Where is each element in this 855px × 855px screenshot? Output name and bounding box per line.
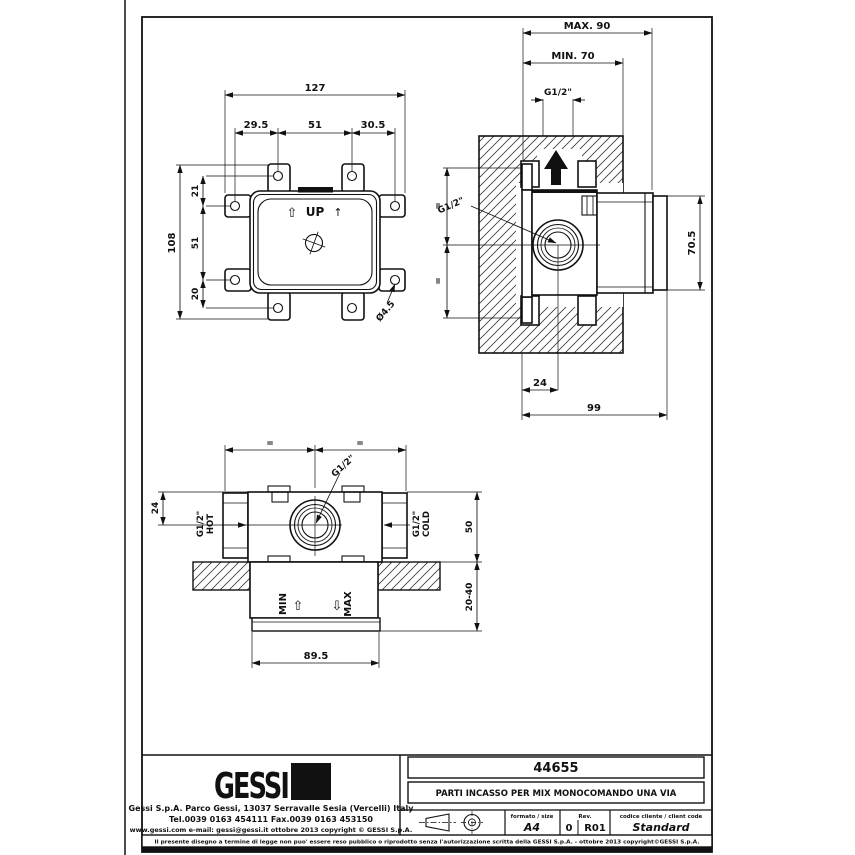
disclaimer-text: Il presente disegno a termine di legge n…: [155, 840, 700, 846]
dim-body-width: 89.5: [304, 651, 329, 662]
dim-v-mid: 51: [191, 237, 201, 250]
dim-overall-height: 108: [167, 233, 178, 254]
protection-box: [250, 562, 378, 618]
bottom-bar: [142, 847, 712, 852]
dim-hole-diameter: Ø4.5: [374, 299, 398, 324]
projection-symbol-icon: [419, 811, 483, 834]
dim-thread-top: G1/2": [544, 88, 572, 98]
cover-edge: [252, 618, 380, 631]
dim-equal-right: =: [356, 439, 364, 449]
max-down-arrow-icon: ⇩: [332, 599, 343, 614]
format-value: A4: [523, 821, 540, 834]
max-label: MAX: [343, 591, 354, 617]
dim-min-depth: MIN. 70: [551, 51, 594, 62]
gessi-logo: GESSI: [214, 763, 331, 807]
dim-thread-center: G1/2": [330, 453, 357, 479]
dim-thread-cold: G1/2": [412, 511, 422, 537]
dim-body-height: 70.5: [687, 231, 698, 256]
dim-v-bottom: 20: [191, 288, 201, 301]
up-label: UP: [306, 205, 325, 219]
dim-thread-hot: G1/2": [196, 511, 206, 537]
company-web: www.gessi.com e-mail: gessi@gessi.it ott…: [130, 826, 413, 834]
company-address: Gessi S.p.A. Parco Gessi, 13037 Serraval…: [129, 804, 415, 813]
client-code-label: codice cliente / client code: [620, 814, 703, 820]
rev-value-1: 0: [566, 823, 573, 834]
dim-center-offset: 24: [533, 378, 547, 389]
end-cap: [653, 196, 667, 290]
part-number: 44655: [533, 761, 578, 776]
front-view: ⇧ UP ↑ 127 29.5 51 30.5 108 21 51 20 Ø4.…: [167, 83, 405, 324]
dim-spacing-right: 30.5: [361, 120, 386, 131]
min-up-arrow-icon: ⇧: [293, 599, 304, 614]
top-view: MIN ⇧ ⇩ MAX = = G1/2" 24 G1/2" HOT G1/2"…: [151, 439, 482, 668]
rev-label: Rev.: [578, 814, 591, 820]
rev-value-2: R01: [584, 823, 606, 834]
dim-center-offset-top: 24: [151, 502, 161, 515]
dim-max-depth: MAX. 90: [564, 21, 611, 32]
technical-drawing: ⇧ UP ↑ 127 29.5 51 30.5 108 21 51 20 Ø4.…: [0, 0, 855, 855]
gessi-logo-text: GESSI: [214, 766, 288, 807]
part-description: PARTI INCASSO PER MIX MONOCOMANDO UNA VI…: [436, 789, 677, 799]
up-arrow-outline-icon: ⇧: [287, 206, 298, 221]
up-arrow-thin-icon: ↑: [333, 206, 342, 219]
company-phone: Tel.0039 0163 454111 Fax.0039 0163 45315…: [169, 815, 373, 824]
title-block: GESSI Gessi S.p.A. Parco Gessi, 13037 Se…: [129, 755, 712, 852]
flange-plate: [522, 190, 532, 297]
wall-strip-right: [378, 562, 440, 590]
dim-wall-range: 20-40: [465, 583, 475, 612]
top-clip: [298, 187, 333, 193]
gessi-logo-square: [291, 763, 331, 800]
dim-body-depth: 50: [465, 521, 475, 534]
dim-spacing-center: 51: [308, 120, 322, 131]
cold-label: COLD: [422, 511, 432, 537]
drawing-frame: [142, 17, 712, 852]
dim-v-top: 21: [191, 185, 201, 198]
min-label: MIN: [278, 593, 289, 615]
drawing-sheet: ⇧ UP ↑ 127 29.5 51 30.5 108 21 51 20 Ø4.…: [0, 0, 855, 855]
wall-strip-left: [193, 562, 250, 590]
dim-overall-width: 127: [305, 83, 326, 94]
dim-total-depth: 99: [587, 403, 601, 414]
hot-label: HOT: [206, 514, 216, 534]
side-view: MAX. 90 MIN. 70 G1/2" = = G1/2" 24 99 70…: [434, 21, 705, 420]
dim-equal-left: =: [266, 439, 274, 449]
dim-spacing-left: 29.5: [244, 120, 269, 131]
format-label: formato / size: [511, 814, 554, 820]
dim-equal-bottom: =: [434, 277, 444, 285]
dim-thread-inlet: G1/2": [436, 196, 466, 216]
client-code-value: Standard: [632, 821, 689, 834]
